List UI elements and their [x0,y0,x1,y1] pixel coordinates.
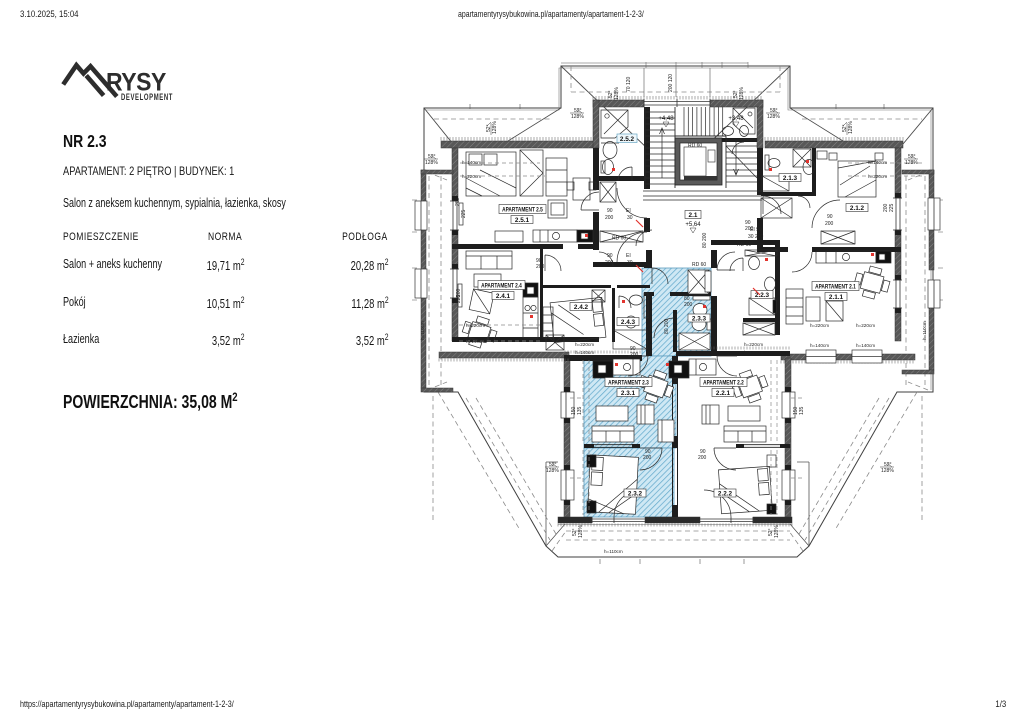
svg-text:EI: EI [626,208,631,214]
svg-text:200 120: 200 120 [668,74,674,92]
svg-text:h=140cm: h=140cm [466,339,485,344]
svg-text:128%: 128% [571,114,584,120]
svg-text:90: 90 [607,208,613,214]
svg-text:80 200: 80 200 [702,232,708,248]
svg-text:90: 90 [827,214,833,220]
svg-text:80 200: 80 200 [664,318,670,334]
svg-text:RD 60: RD 60 [612,236,626,242]
svg-text:2.2.3: 2.2.3 [755,292,770,299]
svg-text:2.4.3: 2.4.3 [621,319,636,326]
svg-text:90: 90 [607,253,613,259]
svg-text:2.1.1: 2.1.1 [829,294,844,301]
svg-text:135: 135 [799,406,805,415]
svg-text:128%: 128% [848,121,854,134]
svg-text:+3,48: +3,48 [728,116,744,122]
svg-text:225: 225 [889,203,895,212]
svg-text:200: 200 [605,215,614,221]
svg-text:2.1.3: 2.1.3 [783,175,798,182]
svg-text:h=140cm: h=140cm [868,160,887,165]
svg-text:128%: 128% [492,121,498,134]
svg-text:70 120: 70 120 [626,76,632,92]
svg-text:2.4.1: 2.4.1 [496,293,511,300]
svg-text:128%: 128% [614,87,620,100]
svg-text:200: 200 [745,226,754,232]
svg-text:2.1.2: 2.1.2 [850,205,865,212]
svg-text:RD 60: RD 60 [692,262,706,268]
svg-text:200: 200 [455,197,461,206]
svg-text:30: 30 [627,260,633,266]
svg-text:h=220cm: h=220cm [810,323,829,328]
svg-text:200: 200 [684,302,693,308]
svg-text:h=220cm: h=220cm [575,342,594,347]
svg-text:2.2.1: 2.2.1 [716,390,731,397]
svg-text:h=140cm: h=140cm [856,343,875,348]
svg-text:225: 225 [456,294,462,303]
svg-text:h=140cm: h=140cm [575,350,594,355]
svg-text:128%: 128% [767,114,780,120]
svg-text:2.5.2: 2.5.2 [620,136,635,143]
svg-text:2.1: 2.1 [689,212,698,219]
svg-text:h=220cm: h=220cm [744,342,763,347]
svg-text:h=220cm: h=220cm [462,174,481,179]
svg-text:RD 60: RD 60 [688,143,702,149]
svg-text:APARTAMENT 2.3: APARTAMENT 2.3 [608,380,649,387]
svg-text:200: 200 [698,455,707,461]
svg-text:2.3.3: 2.3.3 [692,316,707,323]
svg-text:h=110cm: h=110cm [604,549,623,554]
svg-text:225: 225 [461,209,467,218]
svg-text:h=110cm: h=110cm [420,321,425,340]
svg-text:+4,48: +4,48 [658,116,674,122]
svg-text:h=220cm: h=220cm [868,174,887,179]
svg-text:h=140cm: h=140cm [744,350,763,355]
svg-text:h=110cm: h=110cm [922,321,927,340]
svg-text:128%: 128% [774,525,780,538]
svg-text:30 200: 30 200 [748,234,764,240]
svg-text:h=220cm: h=220cm [466,323,485,328]
svg-text:200: 200 [536,264,545,270]
svg-text:RD 60: RD 60 [737,242,751,248]
svg-text:128%: 128% [578,525,584,538]
svg-text:135: 135 [577,406,583,415]
svg-text:2.2.2: 2.2.2 [718,491,733,498]
svg-text:+5,64: +5,64 [685,222,701,228]
svg-text:128%: 128% [546,468,559,474]
svg-text:200: 200 [630,352,639,358]
svg-text:EI: EI [626,253,631,259]
svg-text:2.3.1: 2.3.1 [621,390,636,397]
svg-text:h=140cm: h=140cm [462,160,481,165]
svg-text:128%: 128% [425,160,438,166]
svg-text:200: 200 [825,221,834,227]
svg-text:APARTAMENT 2.5: APARTAMENT 2.5 [502,207,543,214]
svg-text:30: 30 [627,215,633,221]
svg-text:128%: 128% [739,87,745,100]
svg-text:2.4.2: 2.4.2 [574,304,589,311]
svg-text:128%: 128% [905,160,918,166]
svg-text:2.5.1: 2.5.1 [515,217,530,224]
svg-text:2.3.2: 2.3.2 [628,491,643,498]
svg-text:200: 200 [605,260,614,266]
svg-text:APARTAMENT 2.1: APARTAMENT 2.1 [815,284,856,291]
svg-text:h=220cm: h=220cm [856,323,875,328]
svg-text:APARTAMENT 2.2: APARTAMENT 2.2 [703,380,744,387]
svg-text:200: 200 [643,455,652,461]
svg-text:APARTAMENT 2.4: APARTAMENT 2.4 [481,283,522,290]
svg-text:h=140cm: h=140cm [810,343,829,348]
svg-text:128%: 128% [881,468,894,474]
